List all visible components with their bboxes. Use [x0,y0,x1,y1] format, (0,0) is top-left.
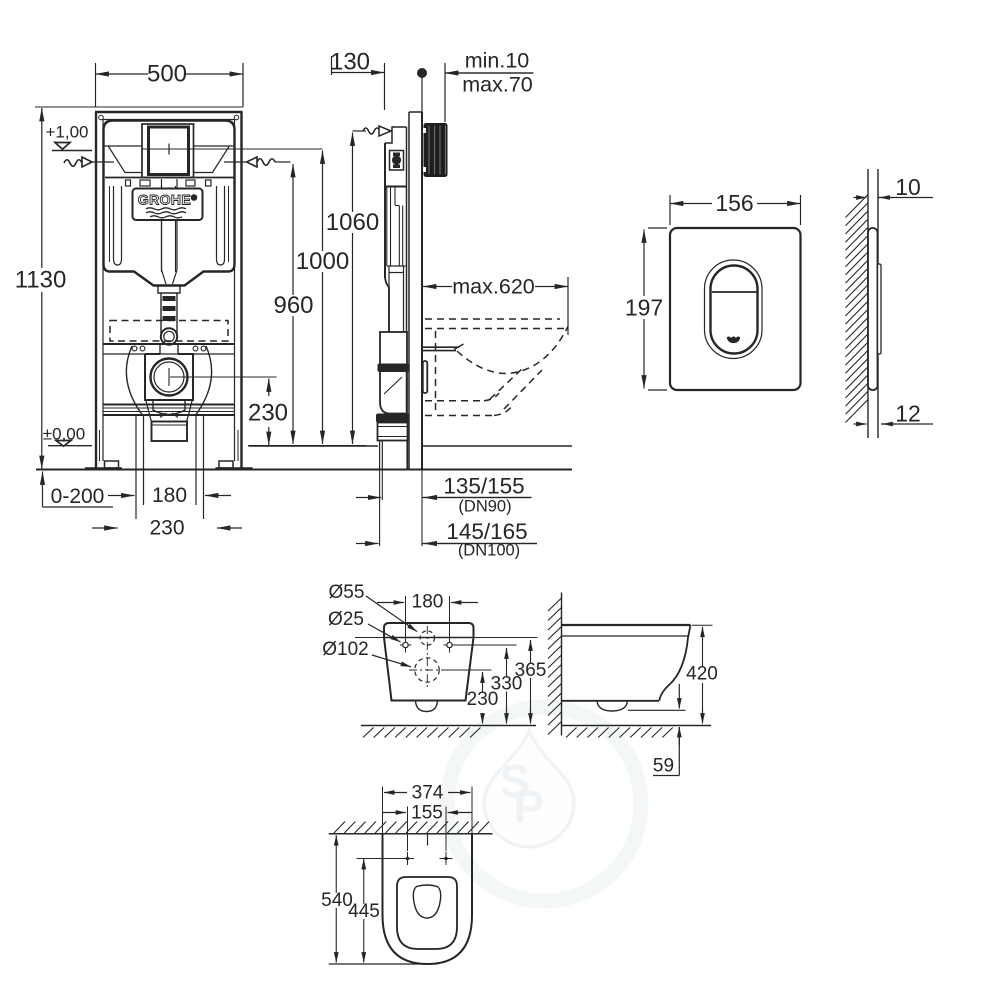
svg-text:180: 180 [152,484,187,507]
svg-text:10: 10 [895,174,921,200]
svg-text:155: 155 [411,803,443,824]
svg-text:1000: 1000 [296,248,349,275]
svg-text:156: 156 [715,190,753,216]
svg-text:135/155: 135/155 [443,474,524,499]
svg-text:max.620: max.620 [452,275,535,299]
svg-text:min.10: min.10 [465,49,530,73]
svg-text:Ø55: Ø55 [329,582,365,603]
svg-text:180: 180 [412,592,444,613]
svg-text:Ø102: Ø102 [322,639,368,660]
svg-text:374: 374 [412,783,444,804]
svg-text:59: 59 [653,756,674,777]
svg-text:197: 197 [625,295,663,321]
svg-text:+1,00: +1,00 [45,123,88,142]
svg-text:(DN100): (DN100) [458,542,520,560]
svg-text:1130: 1130 [15,267,67,294]
svg-text:12: 12 [895,401,921,427]
svg-text:0-200: 0-200 [51,485,105,508]
svg-text:Ø25: Ø25 [328,609,364,630]
svg-text:445: 445 [348,901,380,922]
svg-text:130: 130 [330,49,370,76]
svg-text:GROHE: GROHE [138,192,191,208]
svg-text:500: 500 [147,61,187,88]
svg-text:P: P [514,781,545,833]
svg-text:230: 230 [248,400,288,427]
svg-text:max.70: max.70 [462,73,533,97]
svg-text:365: 365 [515,660,547,681]
svg-text:420: 420 [686,664,718,685]
svg-text:145/165: 145/165 [446,519,527,544]
svg-text:(DN90): (DN90) [458,498,511,516]
svg-text:960: 960 [273,292,313,319]
svg-text:230: 230 [149,517,184,540]
svg-text:1060: 1060 [326,209,379,236]
